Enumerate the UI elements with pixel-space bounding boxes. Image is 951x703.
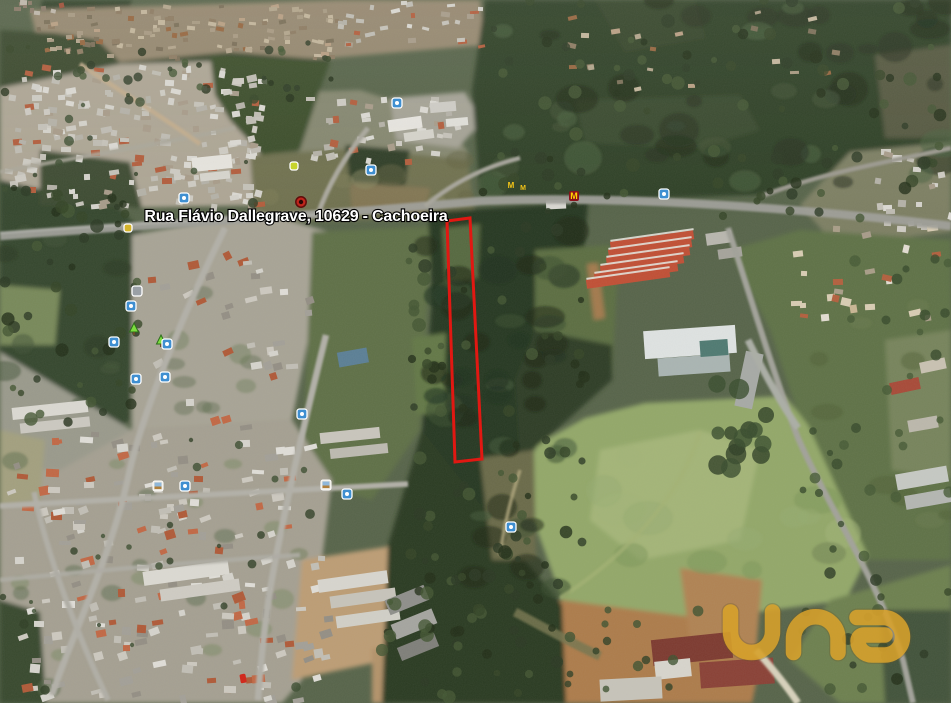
svg-text:Rua Flávio Dallegrave, 10629 -: Rua Flávio Dallegrave, 10629 - Cachoeira <box>144 208 448 225</box>
svg-text:M: M <box>508 181 515 190</box>
svg-text:M: M <box>570 191 578 201</box>
svg-text:M: M <box>520 185 526 192</box>
